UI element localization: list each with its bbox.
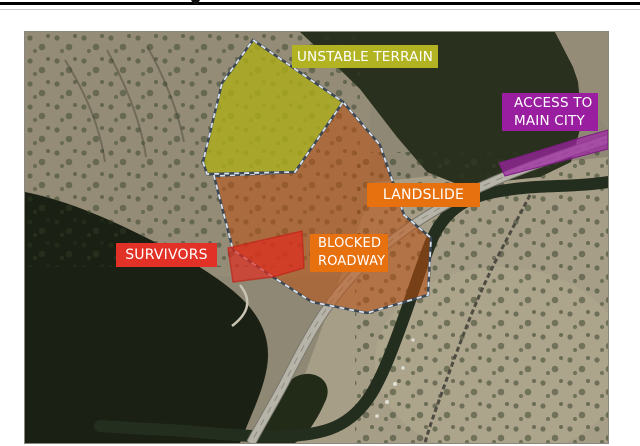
- label-blocked-line1: BLOCKED: [318, 235, 381, 253]
- top-rule: [0, 2, 640, 5]
- label-survivors: SURVIVORS: [116, 243, 217, 267]
- label-survivors-text: SURVIVORS: [125, 247, 208, 263]
- label-blocked-roadway: BLOCKED ROADWAY: [310, 234, 388, 272]
- label-access-to-main-city: ACCESS TO MAIN CITY: [502, 93, 598, 131]
- label-access-line2: MAIN CITY: [514, 112, 585, 130]
- satellite-map: UNSTABLE TERRAIN ACCESS TO MAIN CITY LAN…: [25, 32, 608, 443]
- label-access-line1: ACCESS TO: [514, 94, 592, 112]
- top-rule-secondary: [0, 9, 640, 10]
- figure-page: { "page": { "background": "#ffffff", "to…: [0, 0, 640, 446]
- label-unstable-terrain: UNSTABLE TERRAIN: [292, 45, 438, 68]
- label-unstable-terrain-text: UNSTABLE TERRAIN: [297, 49, 433, 65]
- label-landslide-text: LANDSLIDE: [383, 187, 464, 203]
- label-landslide: LANDSLIDE: [367, 183, 480, 207]
- label-blocked-line2: ROADWAY: [318, 253, 385, 271]
